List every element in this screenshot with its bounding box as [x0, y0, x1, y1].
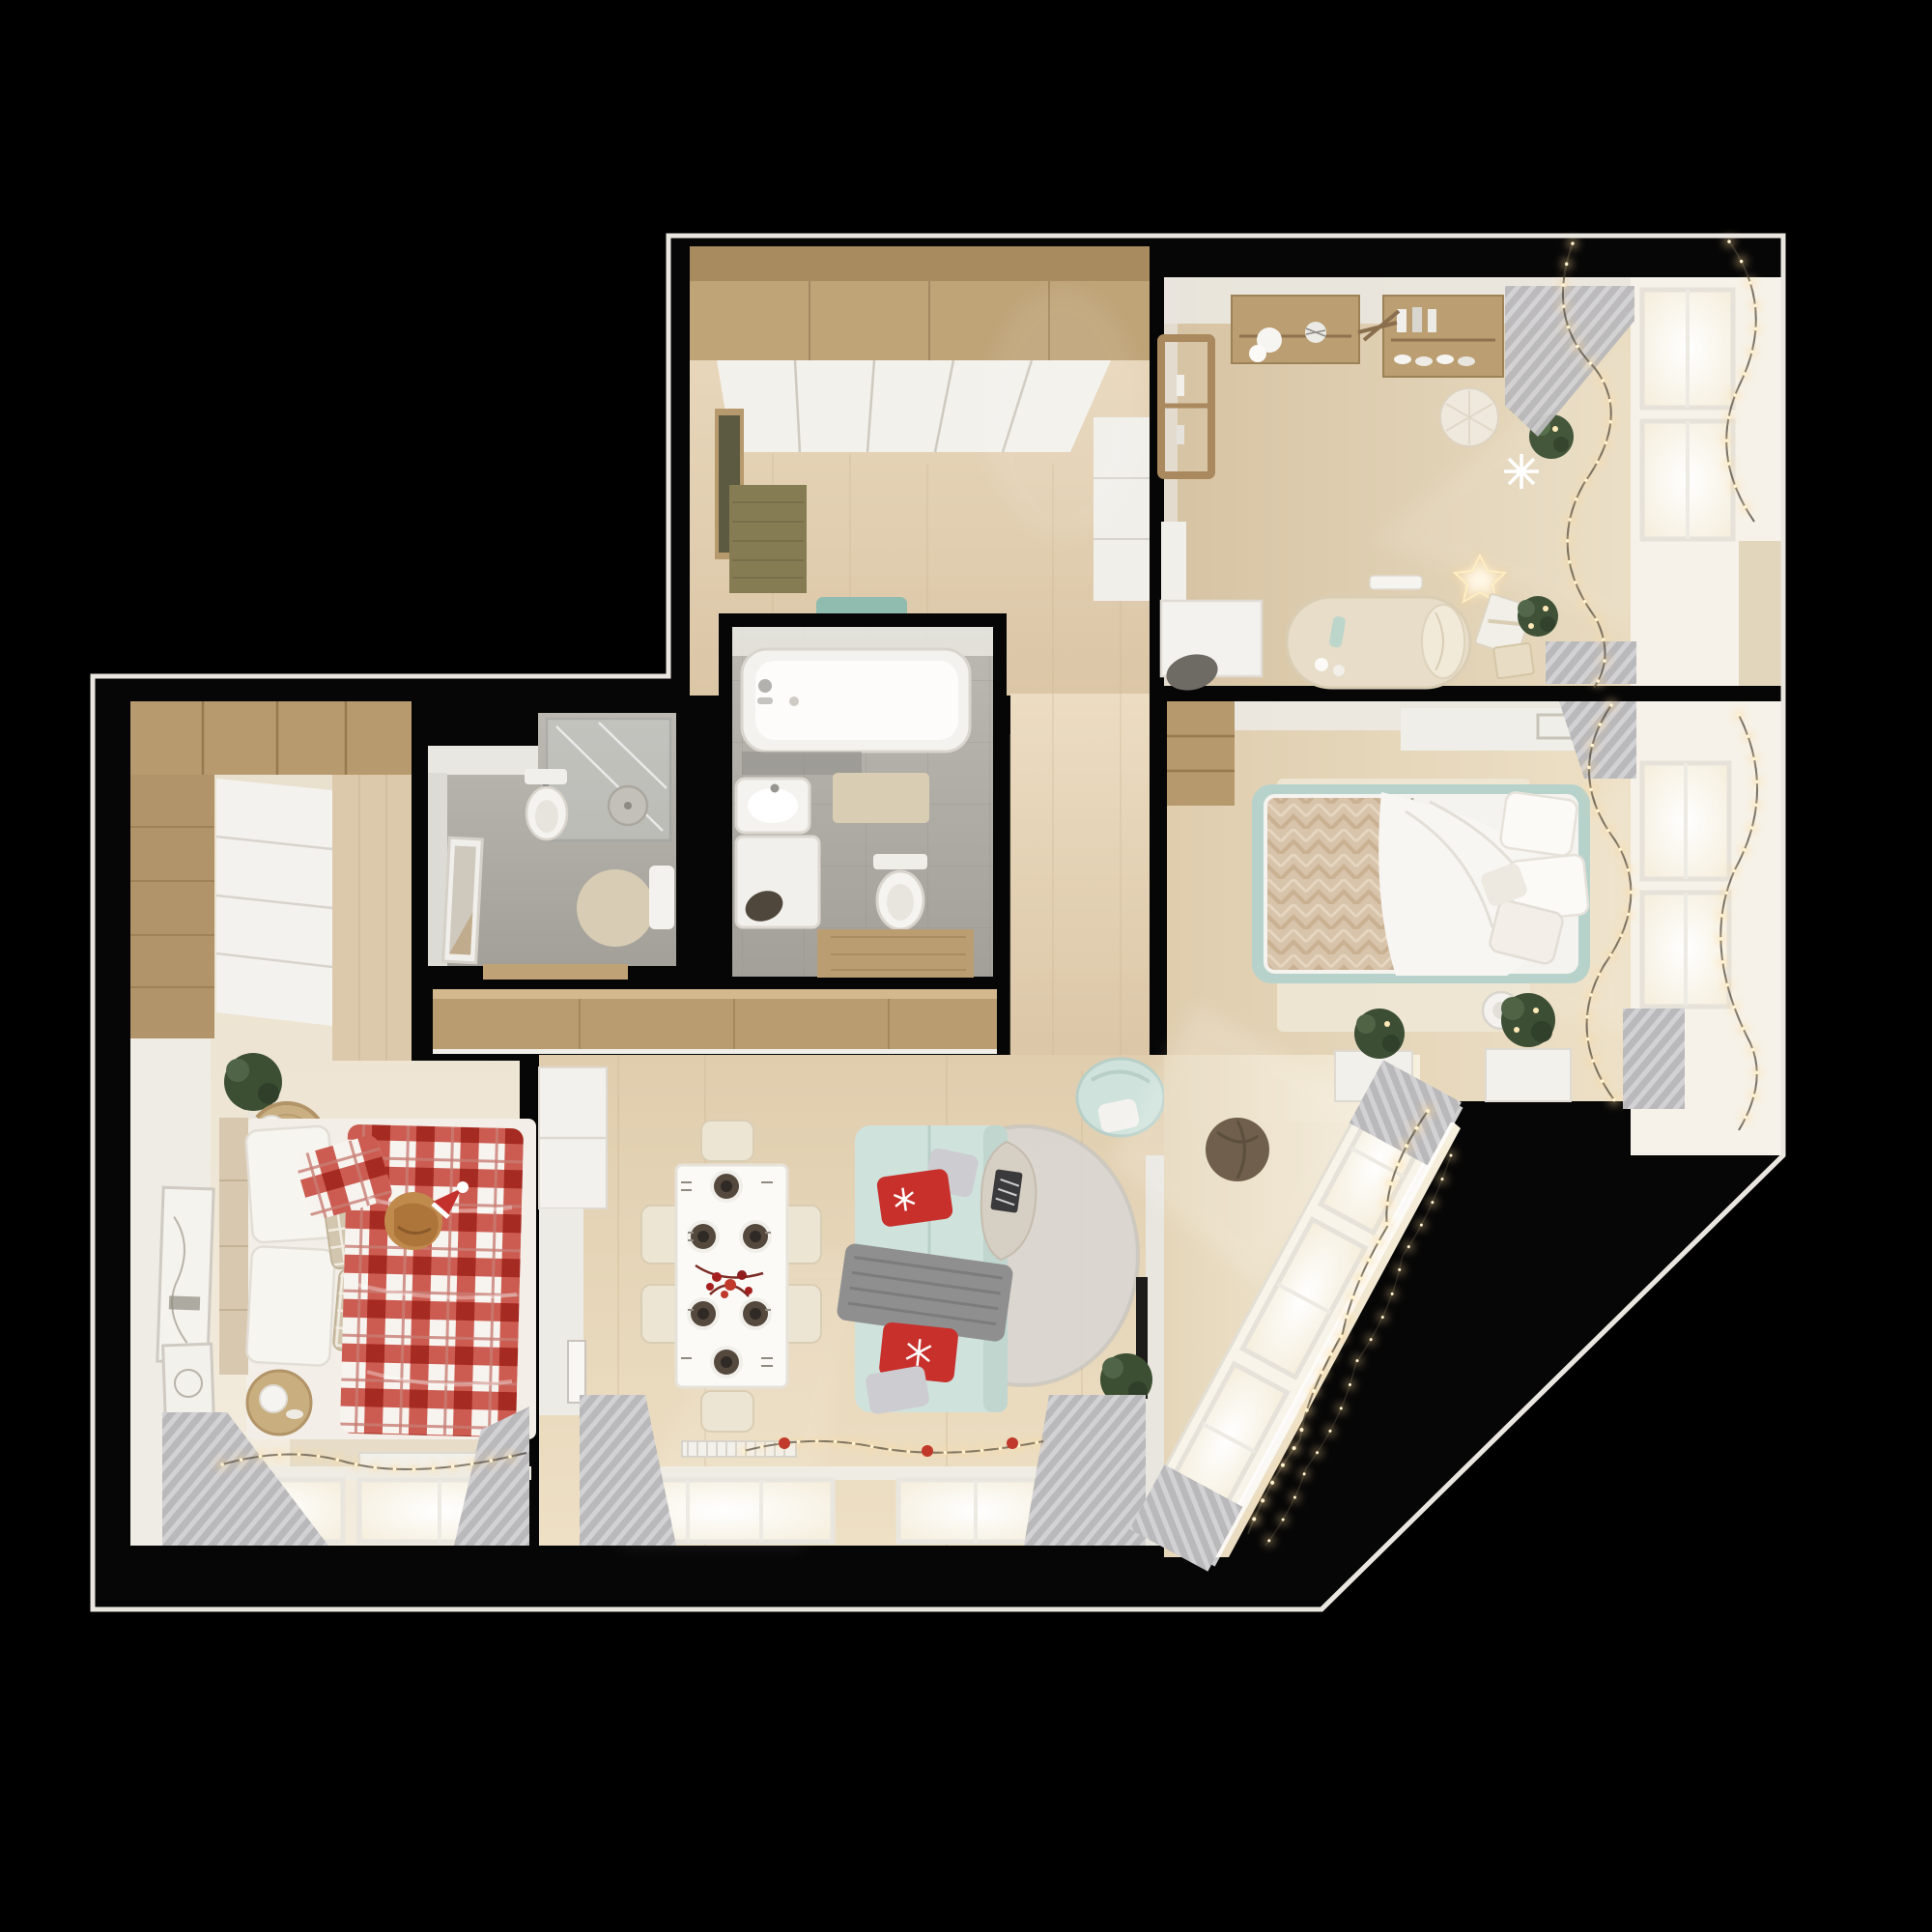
- leaning-mirror: [443, 838, 483, 963]
- hall-corridor-floor: [1010, 694, 1150, 1070]
- bedroomR-wardrobe: [1167, 701, 1235, 806]
- kids-cabinet: [1161, 522, 1186, 601]
- bedroomL-wardrobe-side: [130, 775, 214, 1038]
- shower-toilet-tank: [525, 769, 567, 784]
- wall-art: [568, 1341, 585, 1403]
- console-highlight: [433, 989, 997, 999]
- console-edge: [433, 1049, 997, 1054]
- balcony-plant: [1354, 1009, 1405, 1059]
- daybed: [1287, 597, 1470, 688]
- room-living-dining: [433, 989, 1202, 1546]
- red-bauble: [1007, 1437, 1018, 1449]
- shower-sink: [649, 866, 674, 929]
- bedroomL-wardrobe-top: [130, 701, 412, 775]
- knit-pouf: [1440, 388, 1498, 446]
- kids-bay-floor: [1739, 541, 1782, 686]
- red-pillow-1: [876, 1168, 954, 1228]
- bedroomL-round-table: [247, 1371, 311, 1435]
- bedroomL-plant: [224, 1053, 282, 1111]
- floor-remote: [1370, 576, 1422, 589]
- bedroomL-entry-floor: [332, 775, 412, 1061]
- room-bathroom: [719, 613, 1007, 990]
- bathtub-basin: [755, 661, 958, 740]
- kids-plant-pot-bottom: [1518, 596, 1558, 637]
- floorplan-canvas: [0, 0, 1932, 1932]
- mint-bed: [1252, 784, 1590, 983]
- pillow-1: [1499, 791, 1577, 857]
- toilet-tank: [873, 854, 927, 869]
- room-shower: [413, 698, 688, 984]
- bathtub-drain: [789, 696, 799, 706]
- plate: [710, 1170, 743, 1203]
- kids-wall-shelf-left: [1232, 296, 1359, 363]
- hall-light-wash: [985, 290, 1140, 541]
- red-bauble: [922, 1445, 933, 1457]
- shower-toilet-seat: [535, 800, 558, 833]
- plate: [687, 1297, 720, 1330]
- chair-top: [701, 1121, 753, 1161]
- red-bauble: [779, 1437, 790, 1449]
- chair-bottom: [701, 1391, 753, 1432]
- plate: [687, 1220, 720, 1253]
- sink-faucet: [771, 784, 780, 793]
- plate: [739, 1220, 772, 1253]
- shower-threshold: [483, 964, 628, 980]
- bathtub-mixer: [757, 697, 773, 704]
- snowflake-decor: [1504, 454, 1539, 489]
- white-pillow-2: [246, 1246, 335, 1366]
- sink-basin: [748, 788, 798, 823]
- bedside-lamp: [260, 1385, 287, 1412]
- bath-mat: [833, 773, 929, 823]
- entry-wardrobe-back: [690, 246, 1150, 281]
- leaning-frame-1: [157, 1187, 213, 1363]
- bathtub-faucet: [758, 679, 772, 693]
- brown-pouf: [1206, 1118, 1269, 1181]
- shower-round-rug: [577, 869, 654, 947]
- bedroomR-curtain-bottom: [1623, 1009, 1685, 1109]
- plate: [739, 1297, 772, 1330]
- planter-box: [1486, 1049, 1571, 1101]
- planter-plant: [1501, 993, 1555, 1047]
- glass-screen: [742, 752, 862, 775]
- shower-drain-cap: [624, 802, 632, 810]
- apartment-floorplan-render: [0, 0, 1932, 1932]
- room-kids: [1161, 241, 1782, 696]
- plate: [710, 1346, 743, 1378]
- shower-wall-face-top: [428, 746, 538, 775]
- toilet-seat: [887, 884, 914, 921]
- kids-curtain-bottom: [1546, 641, 1636, 684]
